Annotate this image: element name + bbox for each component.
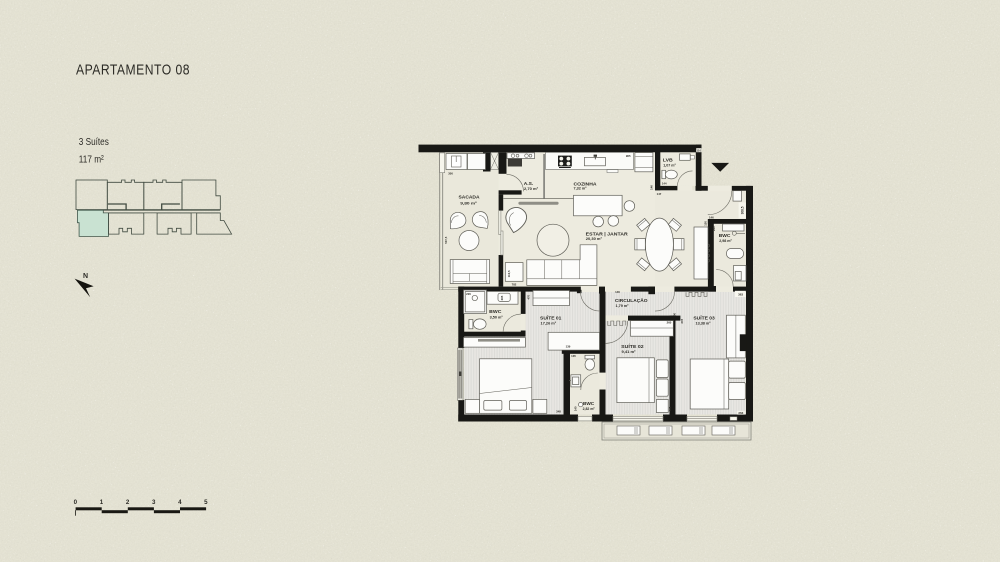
svg-text:110: 110 — [697, 148, 702, 152]
svg-text:2: 2 — [126, 499, 130, 506]
svg-text:965: 965 — [626, 154, 631, 158]
svg-text:378: 378 — [680, 319, 684, 324]
svg-text:4: 4 — [178, 499, 182, 506]
svg-text:300: 300 — [448, 171, 453, 175]
svg-text:2,82 m²: 2,82 m² — [583, 407, 596, 411]
svg-text:CIRCULAÇÃO: CIRCULAÇÃO — [615, 297, 648, 303]
svg-text:20,30 m²: 20,30 m² — [586, 237, 603, 241]
svg-text:APARTAMENTO 08: APARTAMENTO 08 — [76, 62, 190, 79]
svg-text:150: 150 — [704, 221, 708, 226]
svg-text:139: 139 — [566, 345, 571, 349]
svg-text:SACADA: SACADA — [459, 194, 481, 200]
svg-text:9,80 m²: 9,80 m² — [460, 202, 477, 206]
svg-text:507,5: 507,5 — [444, 236, 448, 243]
svg-text:363: 363 — [738, 411, 743, 415]
svg-text:146: 146 — [615, 290, 620, 294]
svg-text:17,26 m²: 17,26 m² — [541, 322, 557, 326]
svg-text:7,32 m²: 7,32 m² — [574, 187, 588, 191]
svg-text:2,70 m²: 2,70 m² — [524, 187, 539, 191]
svg-text:N: N — [83, 273, 88, 280]
svg-text:5: 5 — [204, 499, 208, 506]
svg-text:BWC: BWC — [583, 401, 595, 407]
svg-text:144: 144 — [662, 181, 667, 185]
svg-text:110,5: 110,5 — [507, 270, 511, 277]
svg-text:117 m²: 117 m² — [79, 155, 105, 166]
svg-text:240: 240 — [712, 226, 716, 231]
svg-text:348: 348 — [556, 410, 561, 414]
svg-text:3 Suítes: 3 Suítes — [79, 137, 109, 148]
svg-text:135: 135 — [571, 354, 576, 358]
svg-text:2,98 m²: 2,98 m² — [719, 239, 732, 243]
svg-text:3,50 m²: 3,50 m² — [490, 315, 504, 319]
svg-text:162: 162 — [668, 406, 672, 411]
svg-text:265: 265 — [500, 295, 504, 300]
svg-text:260: 260 — [667, 320, 672, 324]
svg-text:470: 470 — [527, 294, 531, 299]
svg-text:140: 140 — [574, 406, 578, 411]
svg-text:90: 90 — [672, 313, 676, 317]
svg-text:782: 782 — [512, 282, 517, 286]
svg-text:9,41 m²: 9,41 m² — [622, 350, 637, 354]
svg-text:1,79 m²: 1,79 m² — [616, 304, 630, 308]
svg-text:147: 147 — [657, 192, 662, 196]
svg-text:363: 363 — [738, 292, 743, 296]
svg-text:220: 220 — [466, 292, 471, 296]
svg-text:0: 0 — [74, 499, 78, 506]
svg-text:BWC: BWC — [489, 309, 502, 315]
svg-text:1,07 m²: 1,07 m² — [663, 164, 676, 168]
svg-text:308,5: 308,5 — [741, 206, 745, 214]
svg-text:146: 146 — [650, 185, 654, 190]
svg-text:3: 3 — [152, 499, 156, 506]
svg-text:13,38 m²: 13,38 m² — [696, 322, 712, 326]
svg-text:1: 1 — [100, 499, 104, 506]
svg-text:146: 146 — [709, 215, 714, 219]
